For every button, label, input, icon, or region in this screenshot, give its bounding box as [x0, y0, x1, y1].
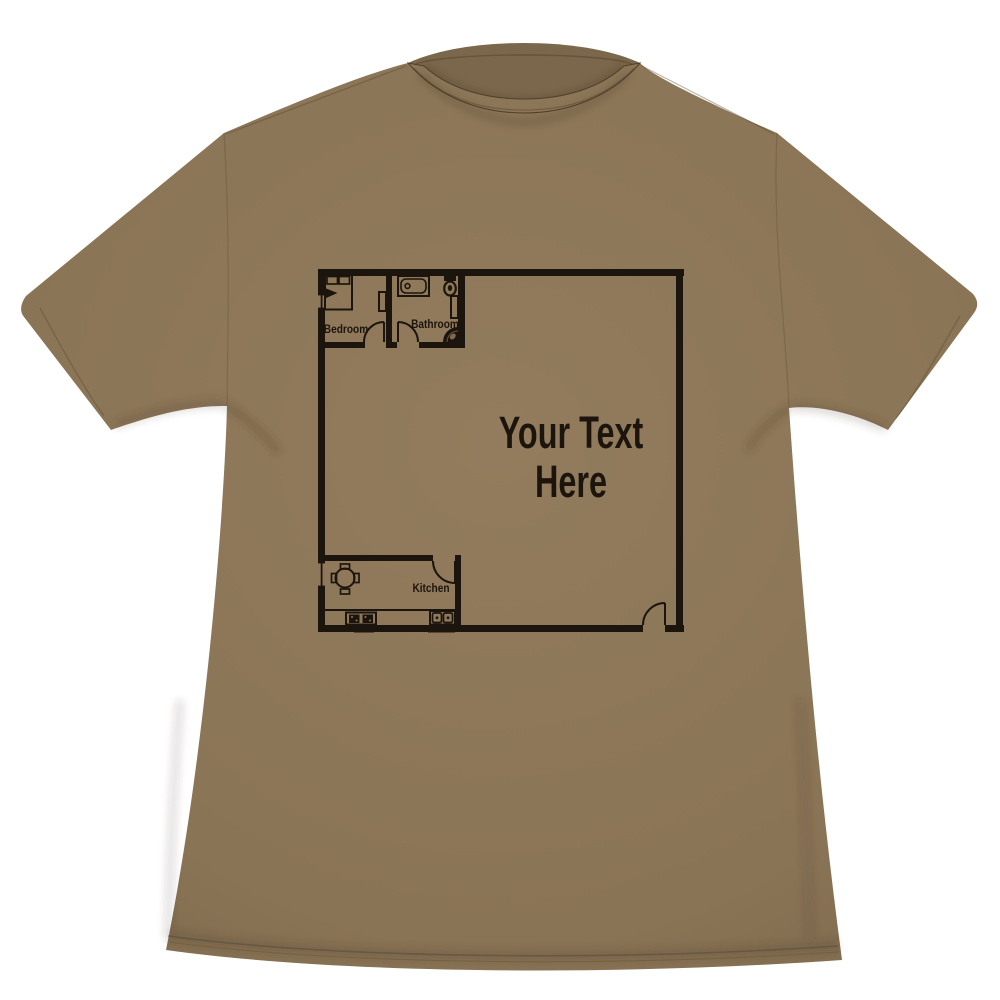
- wall-bath-right: [458, 269, 465, 348]
- bedroom-label: Bedroom: [324, 323, 368, 336]
- custom-text-line1: Your Text: [499, 409, 644, 458]
- custom-text-line2: Here: [535, 458, 607, 507]
- wall-left-a: [318, 269, 325, 295]
- wall-top: [318, 269, 684, 276]
- wall-kitchen-top-a: [325, 555, 433, 561]
- wall-rooms-bottom-a: [325, 342, 365, 348]
- sink-ledge: [428, 625, 455, 633]
- wall-left-b: [318, 308, 325, 563]
- product-photo: Bedroom Bathroom Kitchen Your Text Here: [0, 0, 1000, 1000]
- bathroom-label: Bathroom: [411, 318, 459, 331]
- kitchen-label: Kitchen: [412, 582, 449, 595]
- t-shirt: Bedroom Bathroom Kitchen Your Text Here: [0, 0, 1000, 1000]
- wall-right: [676, 269, 683, 632]
- wall-rooms-bottom-b: [392, 342, 397, 348]
- shirt-body: [21, 63, 977, 970]
- stove-ledge: [354, 625, 374, 633]
- wall-rooms-bottom-c: [419, 342, 458, 348]
- wall-bottom-b: [665, 625, 684, 632]
